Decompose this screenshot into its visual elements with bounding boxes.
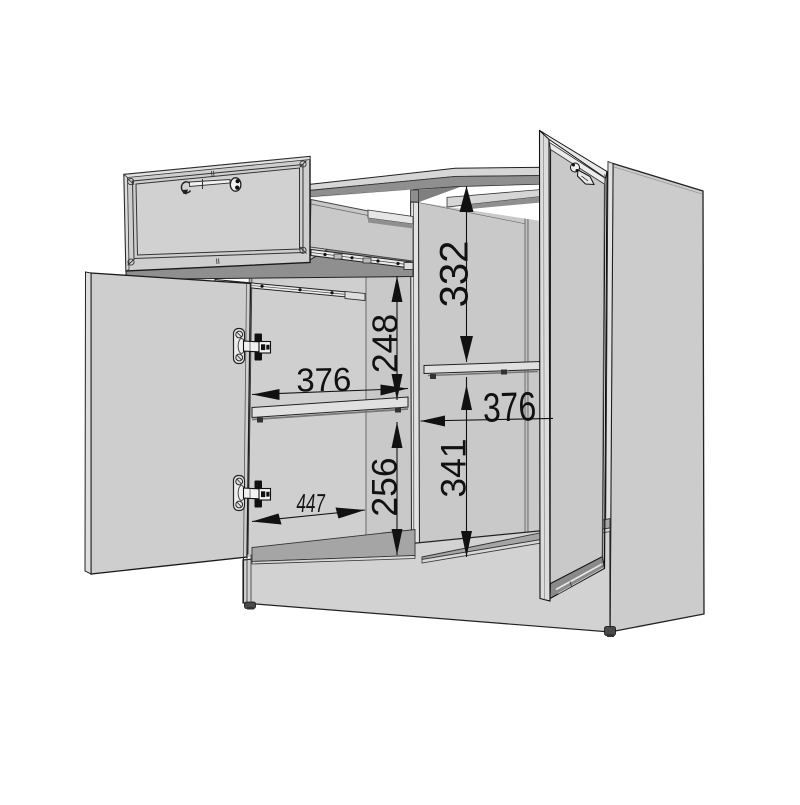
svg-text:376: 376 — [296, 361, 352, 399]
svg-text:376: 376 — [482, 383, 537, 431]
svg-text:341: 341 — [434, 438, 474, 497]
svg-text:256: 256 — [365, 457, 405, 516]
svg-text:447: 447 — [295, 488, 327, 517]
svg-text:332: 332 — [433, 241, 477, 308]
svg-text:248: 248 — [365, 314, 405, 373]
